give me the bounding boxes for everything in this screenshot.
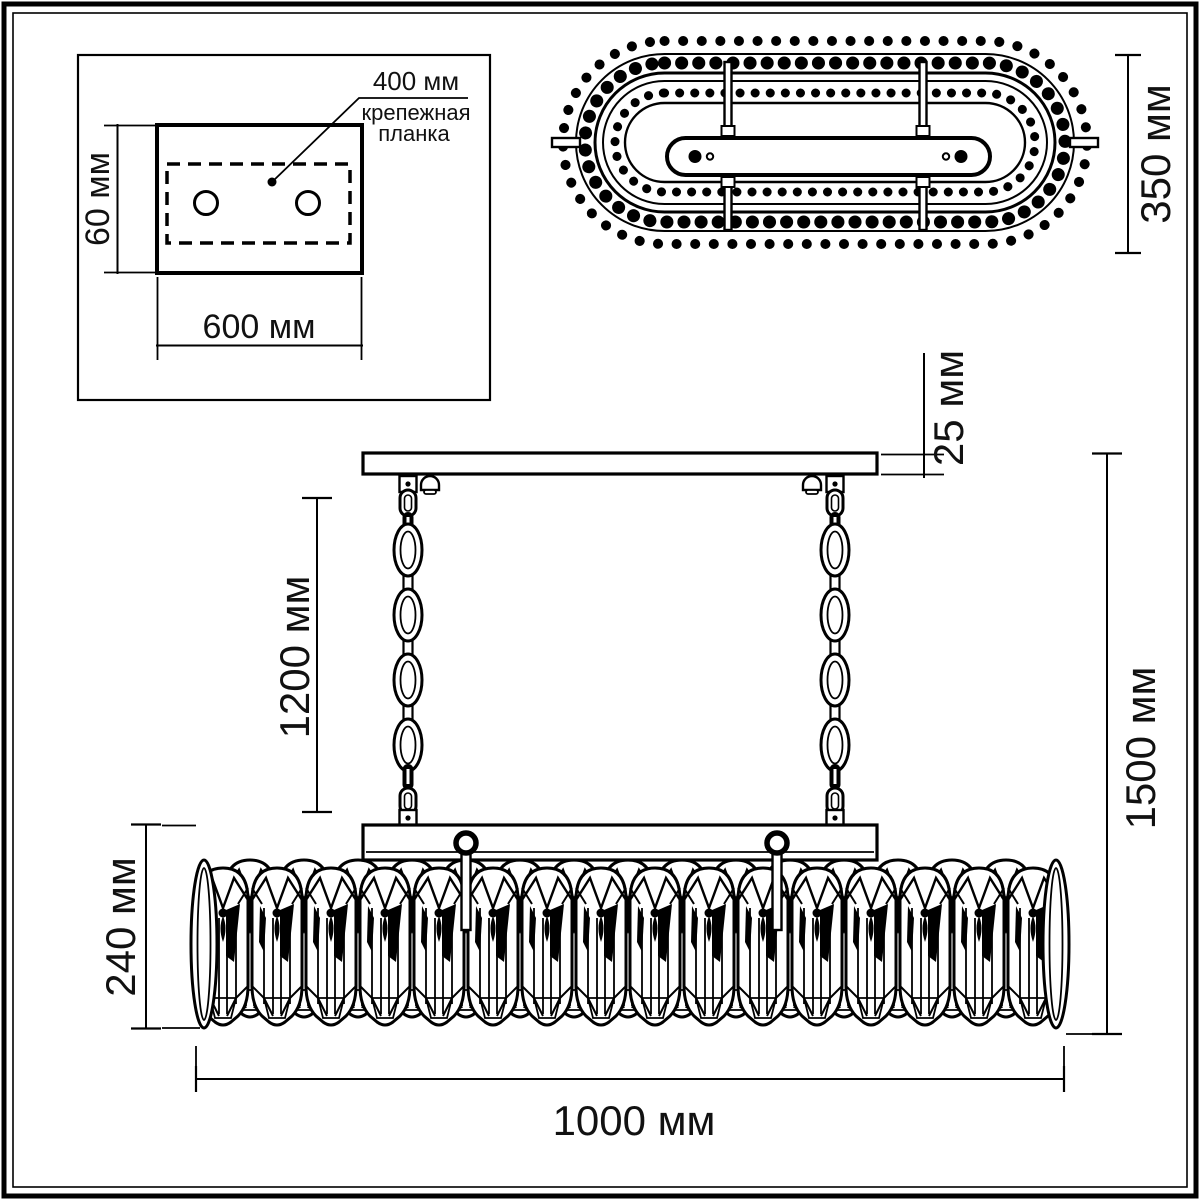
dim-1500mm: 1500 мм — [1066, 454, 1164, 1035]
left-side-connector — [552, 138, 580, 147]
mounting-plate-outline — [157, 125, 362, 273]
dim-350mm: 350 мм — [1115, 55, 1179, 253]
dim-60mm-label: 60 мм — [79, 152, 117, 246]
dimension-drawing-page: 400 мм крепежная планка 60 мм 600 мм — [0, 0, 1200, 1200]
dim-350mm-label: 350 мм — [1132, 84, 1179, 224]
screw-hole-right — [955, 150, 968, 163]
ceiling-plate — [363, 453, 877, 474]
top-view: 350 мм — [552, 41, 1179, 253]
dim-1200mm-label: 1200 мм — [271, 576, 318, 739]
dim-400mm-label: 400 мм — [373, 66, 459, 96]
dim-600mm-label: 600 мм — [203, 308, 316, 346]
right-side-connector — [1070, 138, 1098, 147]
mounting-plate-view: 400 мм крепежная планка 60 мм 600 мм — [78, 55, 490, 400]
frame-bar — [363, 825, 877, 860]
chandelier-dimension-drawing: 400 мм крепежная планка 60 мм 600 мм — [0, 0, 1200, 1200]
screw-hole-left-small — [707, 153, 713, 159]
chain-right — [821, 476, 849, 826]
dim-25mm-label: 25 мм — [925, 350, 972, 466]
mounting-hole-left — [195, 192, 218, 215]
ceiling-hooks — [421, 476, 821, 494]
central-mounting-bar — [667, 138, 990, 175]
dim-25mm: 25 мм — [881, 350, 972, 478]
dim-240mm: 240 мм — [97, 824, 200, 1029]
dim-1200mm: 1200 мм — [271, 498, 332, 812]
dim-1000mm-label: 1000 мм — [553, 1097, 716, 1144]
dim-240mm-label: 240 мм — [97, 857, 144, 997]
chain-left — [394, 476, 422, 826]
screw-hole-right-small — [943, 153, 949, 159]
screw-hole-left — [689, 150, 702, 163]
bracket-label-line2: планка — [378, 121, 450, 146]
mounting-hole-right — [297, 192, 320, 215]
dim-1500mm-label: 1500 мм — [1117, 667, 1164, 830]
dim-1000mm: 1000 мм — [196, 1046, 1064, 1144]
front-view: 25 мм 1200 мм 240 мм 1500 мм 1000 мм — [97, 350, 1164, 1144]
